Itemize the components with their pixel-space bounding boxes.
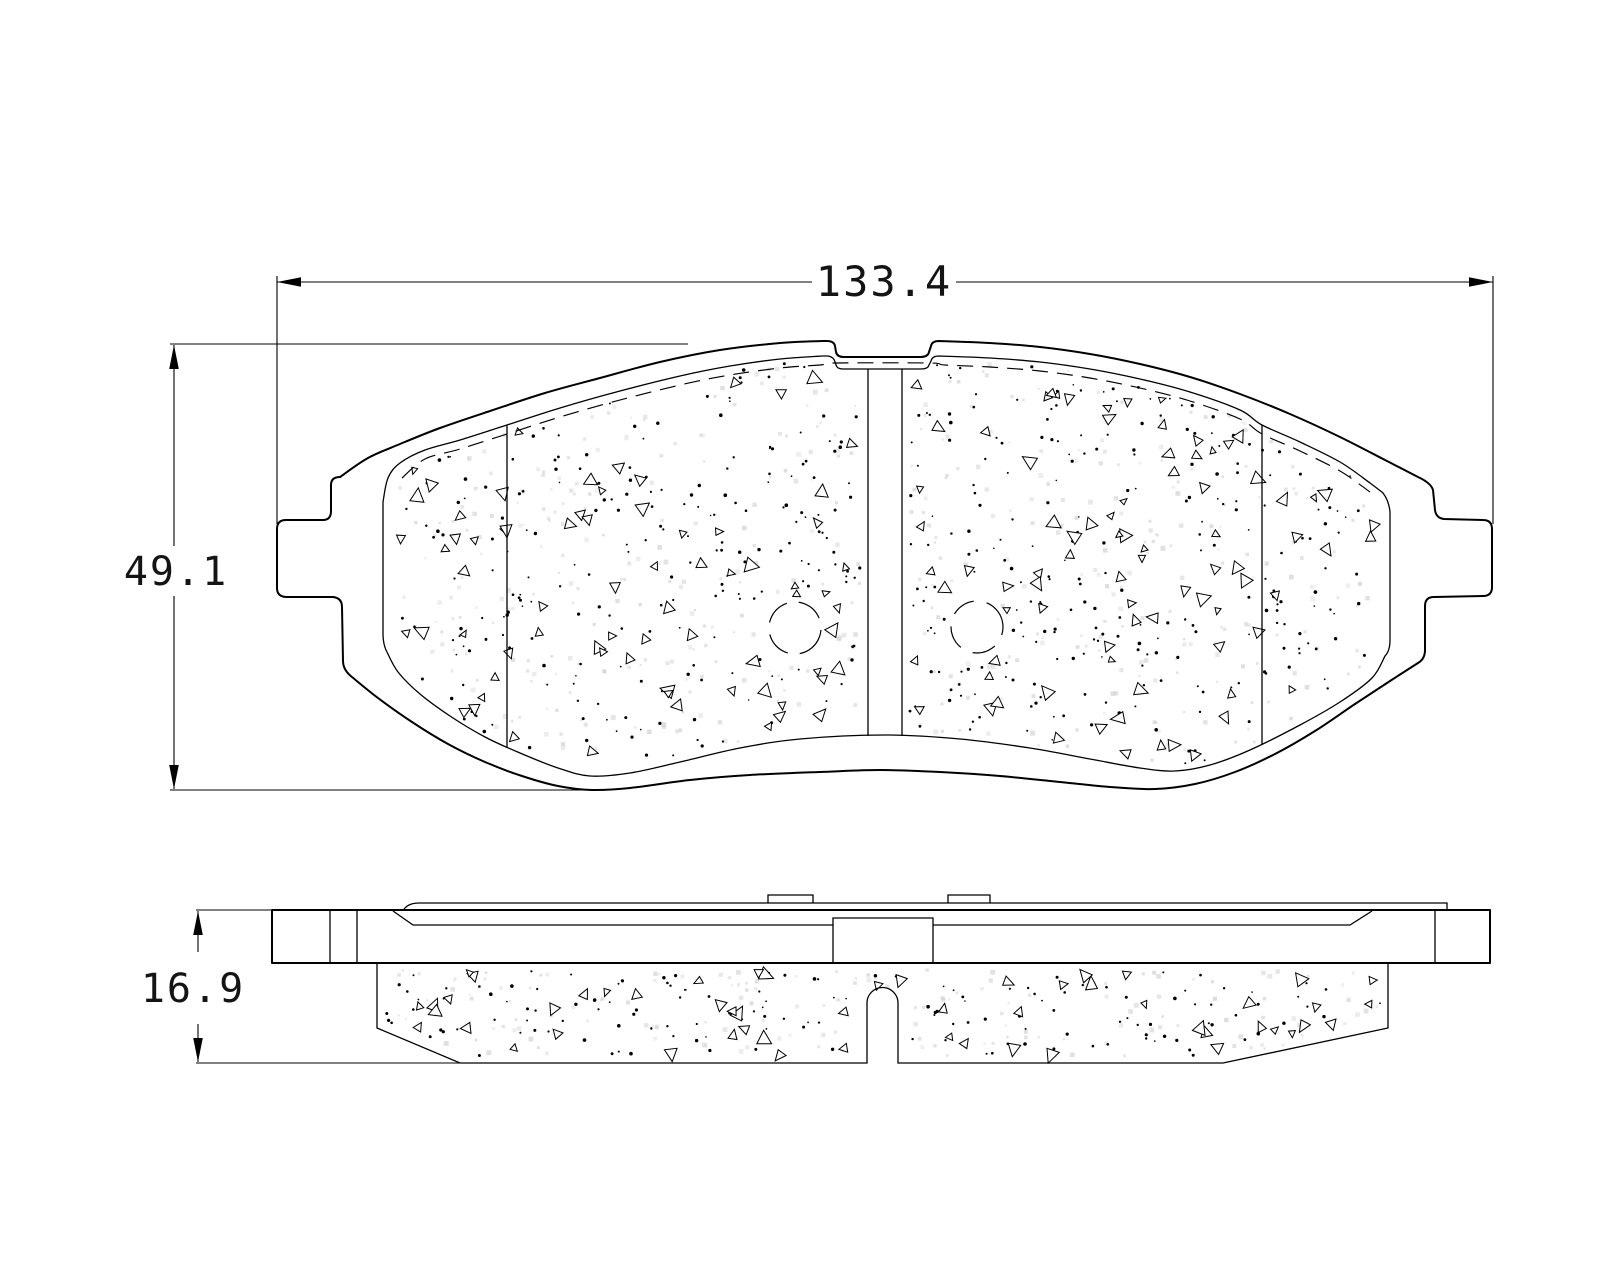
technical-drawing-canvas: 133.4 49.1 16.9 <box>0 0 1600 1280</box>
arrowhead-down-icon <box>193 1038 203 1062</box>
shim-top-edge <box>404 903 1447 910</box>
arrowhead-left-icon <box>277 277 301 287</box>
dimension-thickness-label: 16.9 <box>141 966 245 1012</box>
shim-clip-left <box>768 895 813 903</box>
dimension-width-label: 133.4 <box>816 257 952 306</box>
arrowhead-down-icon <box>169 765 179 789</box>
friction-material-side <box>377 963 1388 1063</box>
brake-pad-side-view <box>272 895 1490 1063</box>
arrowhead-up-icon <box>169 345 179 369</box>
brake-pad-front-view <box>277 341 1492 790</box>
arrowhead-right-icon <box>1469 277 1493 287</box>
dimension-height-label: 49.1 <box>124 549 228 595</box>
shim-clip-right <box>948 895 990 903</box>
friction-texture-side <box>385 967 1381 1063</box>
arrowhead-up-icon <box>193 911 203 935</box>
